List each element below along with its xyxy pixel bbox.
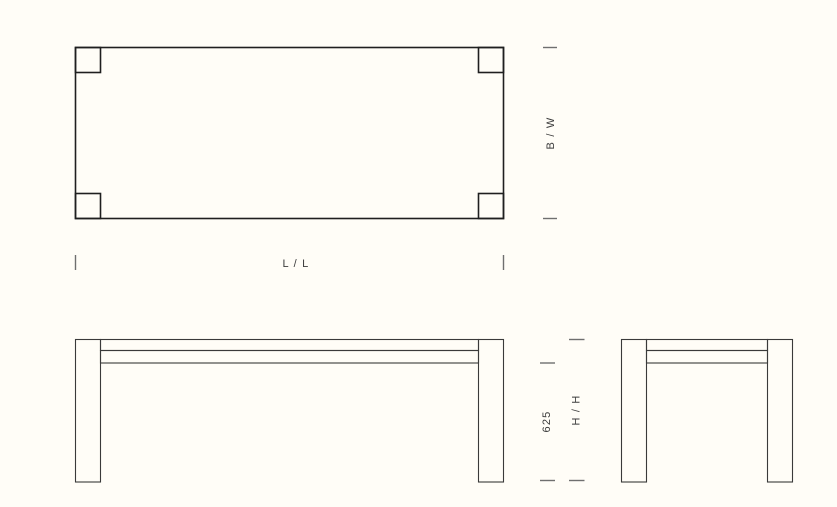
side-apron-rail	[647, 351, 768, 364]
height-dimension-label: H / H	[571, 394, 583, 425]
height-dimension: H / H	[569, 340, 585, 481]
side-tabletop-slab	[647, 340, 768, 351]
side-elevation-view	[622, 340, 793, 483]
drawing-svg: B / W L / L 625 H / H	[0, 0, 837, 507]
plan-leg-top-right	[479, 48, 504, 73]
tabletop-outline	[76, 48, 504, 219]
length-dimension: L / L	[76, 255, 504, 270]
side-leg-left	[622, 340, 647, 483]
clearance-dimension-label: 625	[541, 411, 553, 433]
plan-leg-bottom-left	[76, 194, 101, 219]
plan-leg-top-left	[76, 48, 101, 73]
technical-drawing-sheet: B / W L / L 625 H / H	[0, 0, 837, 507]
plan-leg-bottom-right	[479, 194, 504, 219]
width-dimension: B / W	[543, 48, 557, 219]
width-dimension-label: B / W	[545, 117, 557, 150]
front-elevation-view	[76, 340, 504, 483]
clearance-dimension: 625	[540, 363, 555, 481]
front-tabletop-slab	[101, 340, 479, 351]
plan-view	[76, 48, 504, 219]
front-leg-left	[76, 340, 101, 483]
front-leg-right	[479, 340, 504, 483]
length-dimension-label: L / L	[283, 258, 310, 270]
front-apron-rail	[101, 351, 479, 364]
side-leg-right	[768, 340, 793, 483]
